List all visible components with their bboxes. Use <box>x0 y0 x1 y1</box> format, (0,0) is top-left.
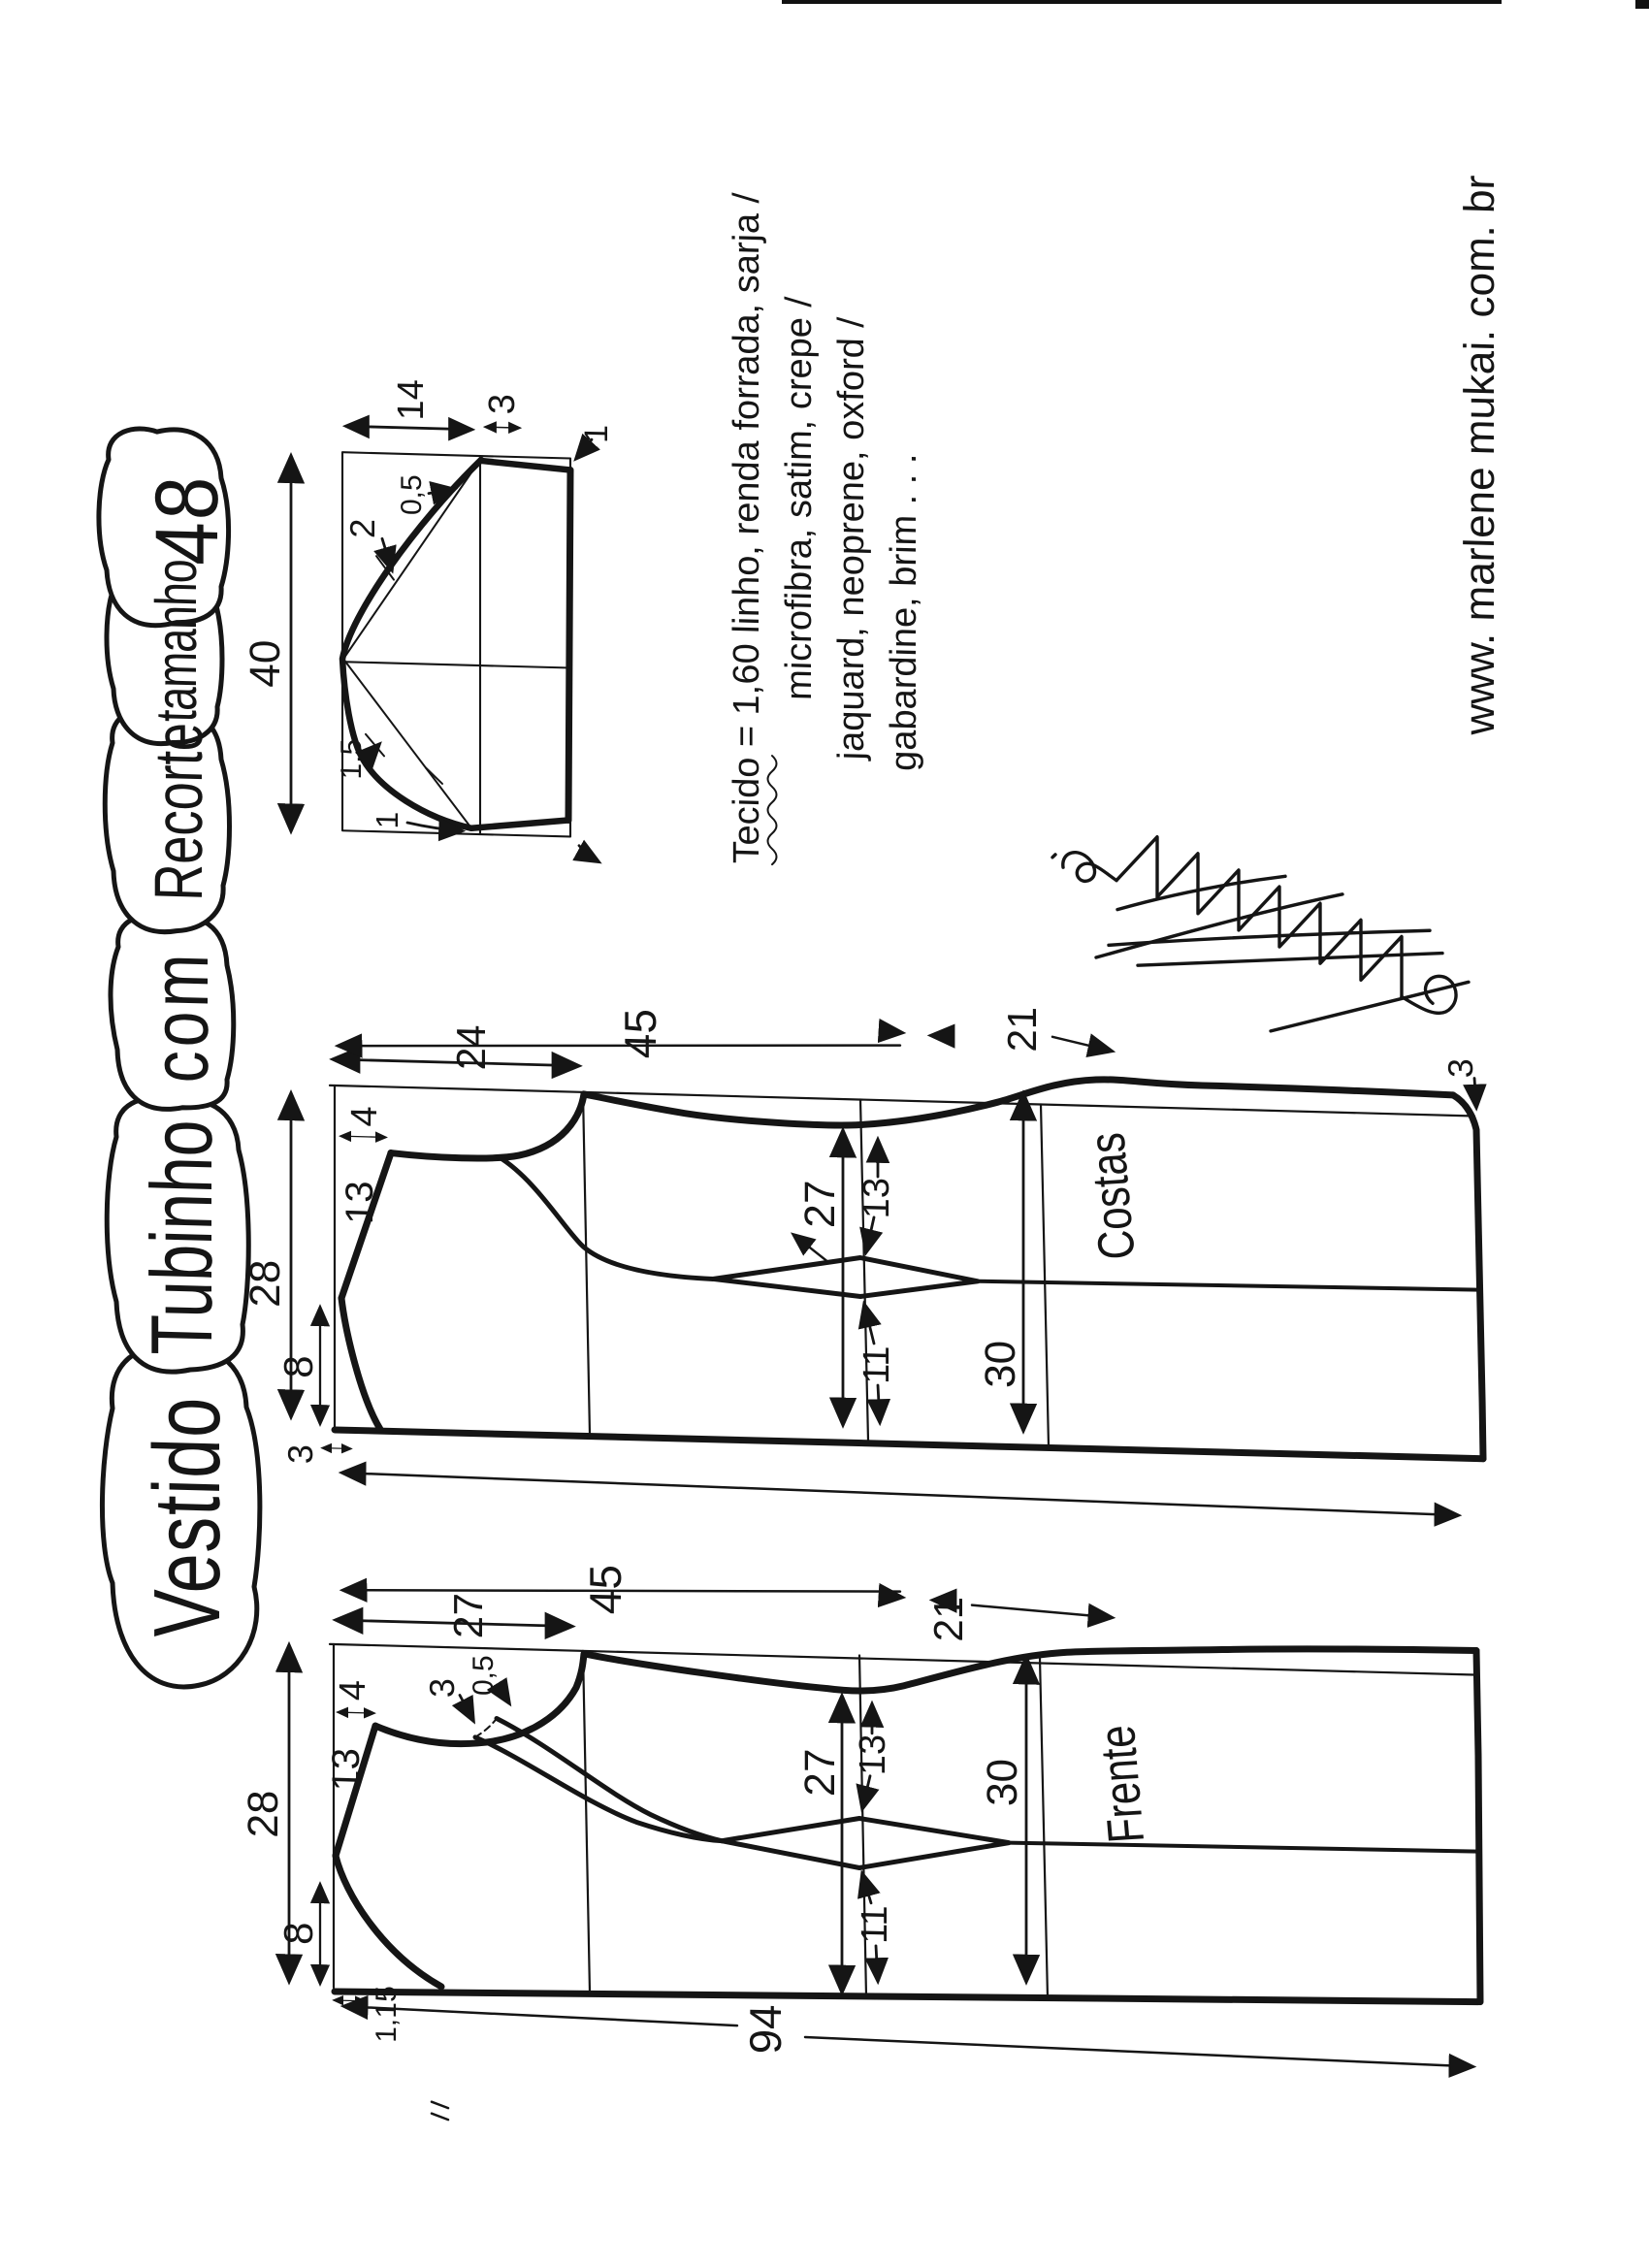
svg-text:Tubinho: Tubinho <box>133 1118 230 1357</box>
svg-text:21: 21 <box>999 1006 1045 1053</box>
svg-text:94: 94 <box>740 2004 791 2056</box>
svg-text:45: 45 <box>580 1564 630 1615</box>
svg-text:0,5: 0,5 <box>468 1655 500 1697</box>
svg-text:8: 8 <box>275 1355 321 1379</box>
svg-text:13: 13 <box>853 1733 893 1775</box>
svg-text:48: 48 <box>138 473 237 567</box>
svg-text:www. marlene mukai. com. br: www. marlene mukai. com. br <box>1456 175 1503 736</box>
svg-text:3: 3 <box>280 1443 320 1464</box>
svg-text:21: 21 <box>925 1596 971 1642</box>
svg-text:tamanho: tamanho <box>145 559 210 723</box>
svg-text:2: 2 <box>342 518 382 538</box>
svg-text:Recorte: Recorte <box>142 722 217 901</box>
svg-text:14: 14 <box>391 378 432 420</box>
svg-text:13: 13 <box>325 1747 368 1792</box>
svg-text:30: 30 <box>979 1758 1026 1806</box>
svg-text:1,15: 1,15 <box>371 1986 403 2043</box>
svg-text:30: 30 <box>977 1340 1024 1388</box>
svg-text:13: 13 <box>339 1181 381 1225</box>
svg-text:1: 1 <box>578 424 615 443</box>
svg-text:1: 1 <box>370 811 404 829</box>
svg-text:3: 3 <box>422 1677 462 1698</box>
svg-text:3: 3 <box>482 394 523 415</box>
svg-text:27: 27 <box>796 1180 844 1228</box>
svg-text:11: 11 <box>857 1345 897 1385</box>
svg-text:microfibra, satim, crepe /: microfibra, satim, crepe / <box>779 296 820 700</box>
svg-text:28: 28 <box>240 1790 287 1838</box>
svg-text:Tecido = 1,60 linho, renda fo: Tecido = 1,60 linho, renda forrada, sarj… <box>727 192 767 864</box>
svg-text:com: com <box>135 949 225 1084</box>
svg-text:40: 40 <box>242 639 289 688</box>
svg-text:Vestido: Vestido <box>135 1395 240 1638</box>
svg-text:gabardine, brim . . .: gabardine, brim . . . <box>884 453 924 771</box>
svg-text:4: 4 <box>344 1106 385 1127</box>
svg-text:1,5: 1,5 <box>336 738 368 780</box>
svg-text:13: 13 <box>857 1177 897 1218</box>
svg-text:3: 3 <box>1440 1058 1480 1079</box>
svg-text:0,5: 0,5 <box>396 474 428 516</box>
svg-text:Frente: Frente <box>1088 1724 1155 1845</box>
svg-text:28: 28 <box>242 1259 289 1308</box>
svg-text:27: 27 <box>796 1748 844 1797</box>
svg-text:4: 4 <box>333 1679 373 1701</box>
svg-text:Costas: Costas <box>1079 1131 1147 1261</box>
svg-text:jaquard, neoprene, oxford /: jaquard, neoprene, oxford / <box>831 316 872 761</box>
svg-text:8: 8 <box>275 1922 321 1946</box>
svg-text:45: 45 <box>615 1008 665 1059</box>
svg-text:24: 24 <box>448 1024 494 1071</box>
svg-text:27: 27 <box>445 1593 491 1639</box>
svg-text:11: 11 <box>855 1905 895 1945</box>
